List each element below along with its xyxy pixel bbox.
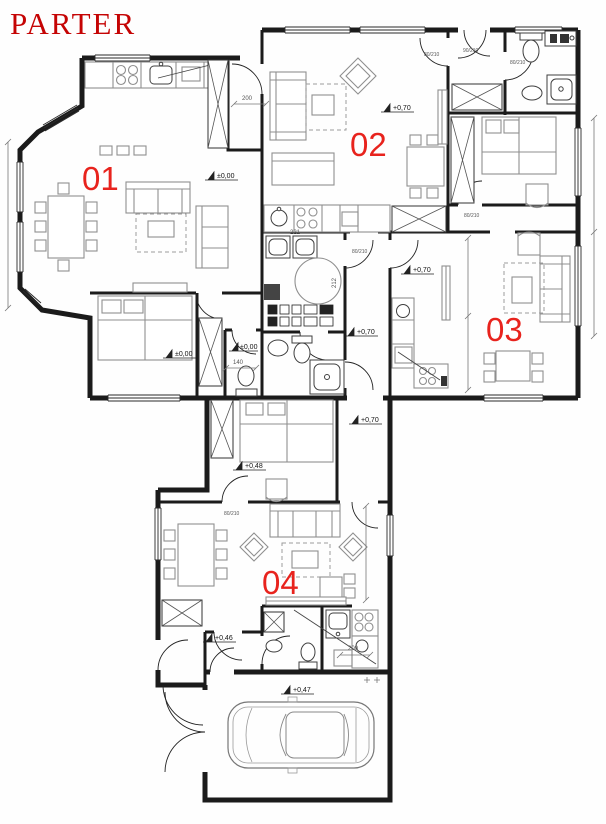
bedroom-mid bbox=[211, 400, 333, 502]
sofa-04 bbox=[270, 504, 340, 537]
elevation-marker: +0,46 bbox=[203, 634, 236, 642]
door-entry04-outer bbox=[158, 640, 188, 670]
dim-core-height: 212 bbox=[332, 277, 338, 288]
elevation-marker: +0,70 bbox=[349, 416, 382, 424]
window-right-04 bbox=[386, 515, 394, 556]
window-kitchen01 bbox=[95, 54, 150, 62]
door-kitchen01 bbox=[232, 64, 262, 94]
chair-icon bbox=[266, 479, 287, 502]
svg-text:+0,70: +0,70 bbox=[413, 267, 431, 274]
svg-text:±0,00: ±0,00 bbox=[240, 344, 258, 351]
dim-wc01: 140 bbox=[233, 360, 244, 366]
washer-icon bbox=[264, 612, 284, 632]
door-size: 80/210 bbox=[510, 60, 526, 66]
armchair-diagonal-04 bbox=[240, 533, 268, 561]
sofa-01 bbox=[126, 182, 190, 213]
dining-table-03 bbox=[484, 351, 543, 382]
washbasin-icon bbox=[266, 640, 282, 652]
unit-label-02: 02 bbox=[350, 126, 387, 163]
elevation-marker: +0,70 bbox=[345, 328, 378, 336]
kitchenette-03 bbox=[392, 298, 448, 388]
door-corridor-unit04 bbox=[352, 502, 378, 528]
unit-label-01: 01 bbox=[82, 160, 119, 197]
wardrobe-icon bbox=[452, 84, 502, 110]
svg-text:+0,70: +0,70 bbox=[361, 417, 379, 424]
door-bedroom-mid bbox=[222, 476, 248, 502]
svg-text:+0,46: +0,46 bbox=[215, 635, 233, 642]
armchair-diagonal-04 bbox=[339, 533, 367, 561]
washbasin-icon bbox=[522, 86, 542, 100]
floor-plan-page: 200 140 200 221 212 90/210 80/210 80/210… bbox=[0, 0, 606, 824]
door-size: 80/210 bbox=[464, 213, 480, 219]
coffee-table-01 bbox=[148, 221, 174, 237]
chair-icon bbox=[518, 232, 540, 255]
svg-text:+0,70: +0,70 bbox=[393, 105, 411, 112]
door-hall-bottom bbox=[345, 362, 373, 390]
unit-label-03: 03 bbox=[486, 311, 523, 348]
door-size: 80/210 bbox=[352, 249, 368, 255]
bathroom-04 bbox=[264, 612, 317, 669]
dim-kitchen01: 200 bbox=[242, 96, 253, 102]
kitchen-island-02 bbox=[272, 153, 334, 185]
coffee-table-02 bbox=[312, 95, 334, 115]
entry-hall bbox=[452, 84, 502, 110]
bed-right bbox=[482, 117, 556, 174]
wardrobe-icon bbox=[162, 600, 202, 626]
sink-icon bbox=[271, 210, 287, 226]
window-bedroom-right bbox=[574, 128, 582, 196]
dim-kitchen04: 200 bbox=[348, 646, 359, 652]
window-terrace03 bbox=[484, 394, 543, 402]
kitchen-01 bbox=[85, 60, 230, 148]
elevation-marker: ±0,00 bbox=[205, 172, 238, 180]
window-bay-a bbox=[16, 162, 24, 212]
drain-marks bbox=[364, 677, 380, 683]
door-size: 80/210 bbox=[224, 511, 240, 517]
toilet-icon bbox=[520, 33, 542, 62]
sink-icon bbox=[397, 305, 410, 318]
laundry-sink-icon bbox=[266, 236, 290, 258]
wardrobe-icon bbox=[199, 318, 222, 386]
bedroom-01 bbox=[98, 296, 257, 396]
dim-core-width: 221 bbox=[290, 230, 301, 236]
armchair-diagonal-02 bbox=[340, 58, 376, 94]
shower-icon bbox=[547, 75, 576, 104]
window-living03 bbox=[574, 246, 582, 326]
unit-label-04: 04 bbox=[262, 564, 299, 601]
chair-icon bbox=[526, 184, 548, 208]
elevation-marker: ±0,00 bbox=[229, 343, 258, 351]
shower-icon bbox=[310, 360, 344, 394]
window-bedroom01 bbox=[108, 394, 180, 402]
living-03 bbox=[392, 232, 570, 388]
dining-table-04 bbox=[164, 524, 227, 586]
core-vestibule bbox=[264, 236, 341, 304]
toilet-icon bbox=[292, 336, 312, 363]
bar-table-04 bbox=[320, 574, 355, 599]
washbasin-icon bbox=[268, 340, 288, 356]
car-icon bbox=[228, 697, 374, 773]
wardrobe-icon bbox=[208, 60, 228, 148]
dark-cabinet bbox=[264, 284, 280, 300]
door-size: 80/210 bbox=[424, 52, 440, 58]
living-01 bbox=[35, 146, 228, 292]
core-bathroom bbox=[268, 336, 344, 394]
page-title: PARTER bbox=[10, 6, 136, 41]
laundry-sink-icon bbox=[293, 236, 317, 258]
bedroom-right bbox=[451, 117, 556, 208]
toilet-icon bbox=[299, 643, 317, 669]
door-garage-inner bbox=[210, 648, 234, 672]
window-living02-a bbox=[285, 26, 350, 34]
svg-text:+0,48: +0,48 bbox=[245, 463, 263, 470]
floor-plan-canvas: 200 140 200 221 212 90/210 80/210 80/210… bbox=[0, 0, 606, 824]
door-porch bbox=[163, 685, 203, 725]
stair-grid bbox=[268, 305, 333, 326]
svg-text:+0,47: +0,47 bbox=[293, 687, 311, 694]
stove-icon bbox=[352, 610, 378, 636]
wardrobe-icon bbox=[392, 206, 446, 232]
vanity-counter bbox=[545, 31, 576, 46]
svg-text:+0,70: +0,70 bbox=[357, 329, 375, 336]
door-garage-leaf-b bbox=[165, 732, 205, 772]
wardrobe-icon bbox=[211, 400, 233, 458]
door-garage-leaf-a bbox=[165, 692, 205, 732]
elevation-marker: +0,70 bbox=[401, 266, 434, 274]
radiator-02 bbox=[438, 90, 447, 144]
mirror-icon bbox=[288, 768, 297, 773]
door-size-entry: 90/210 bbox=[463, 48, 479, 54]
tv-cabinet-01 bbox=[133, 283, 187, 292]
coffee-table-03 bbox=[512, 277, 532, 303]
elevation-marker: +0,48 bbox=[233, 462, 266, 470]
kitchen-counter-02 bbox=[264, 205, 390, 232]
bar-stools-01 bbox=[100, 146, 146, 155]
window-bay-b bbox=[16, 222, 24, 272]
window-living04 bbox=[154, 508, 162, 560]
bed-mid bbox=[240, 400, 333, 462]
door-hall-unit03 bbox=[390, 240, 418, 268]
wardrobe-icon bbox=[451, 117, 474, 203]
sofa-02 bbox=[270, 72, 306, 140]
armchair-01 bbox=[196, 206, 228, 268]
elevation-marker: +0,47 bbox=[281, 686, 314, 694]
mirror-icon bbox=[288, 697, 297, 702]
svg-text:±0,00: ±0,00 bbox=[217, 173, 235, 180]
tv-panel-03 bbox=[442, 266, 450, 320]
elevation-marker: +0,70 bbox=[381, 104, 414, 112]
window-living02-b bbox=[360, 26, 425, 34]
door-bedroom01 bbox=[196, 293, 222, 319]
svg-text:±0,00: ±0,00 bbox=[175, 351, 193, 358]
